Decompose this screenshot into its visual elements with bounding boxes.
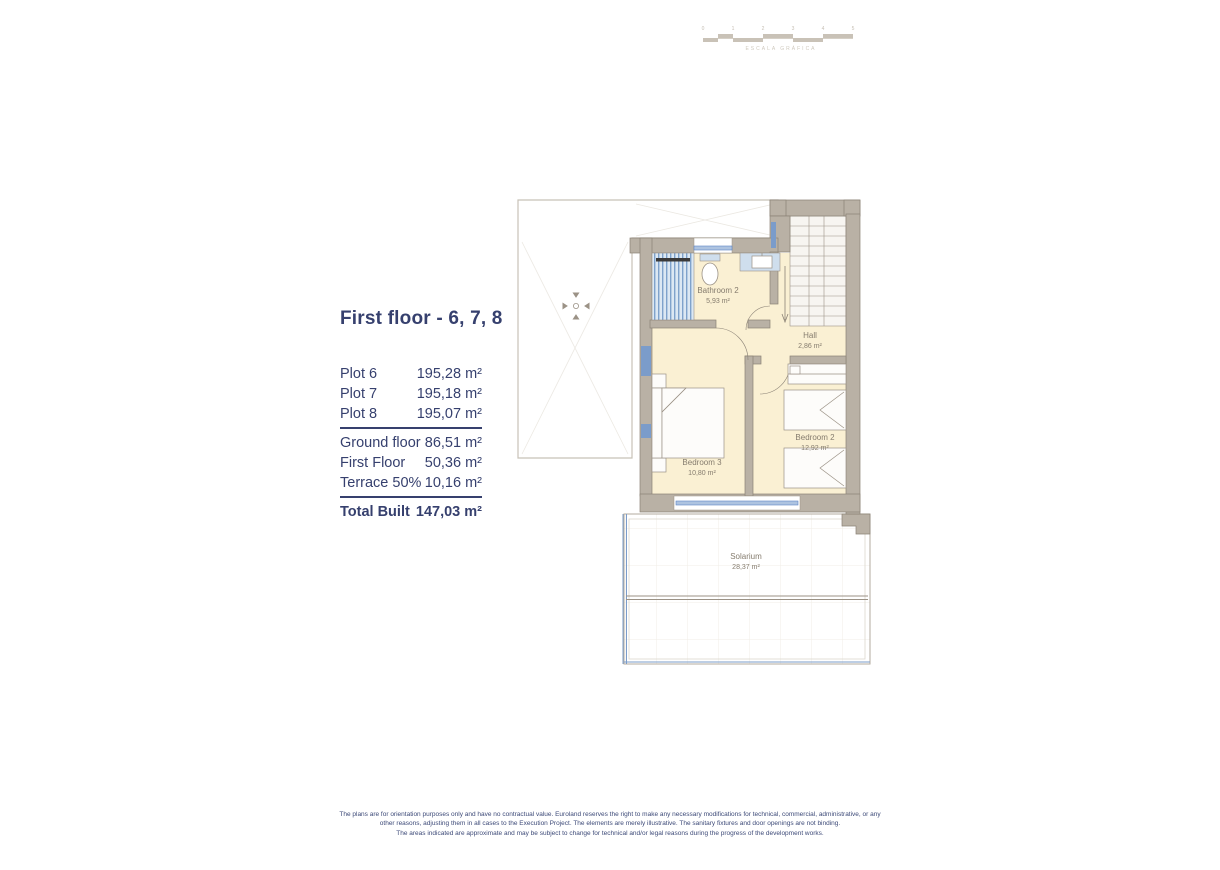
table-row: Plot 6 195,28 m²: [340, 364, 482, 384]
sink: [752, 256, 772, 268]
row-label: Terrace 50%: [340, 473, 421, 493]
room-label-solarium: Solarium 28,37 m²: [730, 551, 762, 573]
scale-caption: ESCALA GRÁFICA: [703, 46, 859, 52]
scale-ticks: 0 1 2 3 4 5: [703, 26, 859, 33]
row-label: Ground floor: [340, 433, 421, 453]
scale-tick-label: 1: [732, 26, 735, 32]
disclaimer-line: The plans are for orientation purposes o…: [0, 810, 1220, 819]
room-label-bathroom2: Bathroom 2 5,93 m²: [697, 285, 738, 307]
total-row: Total Built 147,03 m²: [340, 502, 482, 522]
toilet-bowl: [702, 263, 718, 285]
total-value: 147,03 m²: [416, 502, 482, 522]
room-area: 28,37 m²: [730, 563, 762, 573]
room-area: 2,86 m²: [798, 342, 822, 352]
row-value: 10,16 m²: [425, 473, 482, 493]
table-row: Terrace 50% 10,16 m²: [340, 473, 482, 493]
room-label-hall: Hall 2,86 m²: [798, 330, 822, 352]
row-label: Plot 7: [340, 384, 377, 404]
room-label-bedroom3: Bedroom 3 10,80 m²: [682, 457, 721, 479]
table-row: First Floor 50,36 m²: [340, 453, 482, 473]
table-row: Ground floor 86,51 m²: [340, 433, 482, 453]
toilet-tank: [700, 254, 720, 261]
row-value: 86,51 m²: [425, 433, 482, 453]
scale-tick-label: 2: [762, 26, 765, 32]
scale-tick-label: 0: [702, 26, 705, 32]
room-name: Solarium: [730, 551, 762, 563]
row-value: 50,36 m²: [425, 453, 482, 473]
bedroom2-furniture: [784, 364, 846, 488]
total-label: Total Built: [340, 502, 410, 522]
room-label-bedroom2: Bedroom 2 12,92 m²: [795, 432, 834, 454]
page-title: First floor - 6, 7, 8: [340, 308, 482, 330]
staircase: [782, 216, 846, 326]
row-value: 195,18 m²: [417, 384, 482, 404]
room-area: 12,92 m²: [795, 444, 834, 454]
disclaimer-line: The areas indicated are approximate and …: [0, 829, 1220, 838]
table-row: Plot 8 195,07 m²: [340, 404, 482, 424]
solarium-area: [623, 514, 870, 664]
disclaimer: The plans are for orientation purposes o…: [0, 810, 1220, 838]
floor-plan: Bathroom 2 5,93 m² Hall 2,86 m² Bedroom …: [502, 196, 882, 676]
shower: [652, 253, 694, 320]
divider-line: [340, 496, 482, 498]
room-area: 10,80 m²: [682, 469, 721, 479]
area-table: Plot 6 195,28 m² Plot 7 195,18 m² Plot 8…: [340, 364, 482, 522]
disclaimer-line: other reasons, adjusting them in all cas…: [0, 819, 1220, 828]
scale-tick-label: 5: [852, 26, 855, 32]
room-name: Bedroom 3: [682, 457, 721, 469]
shower-bar: [656, 258, 690, 262]
row-label: First Floor: [340, 453, 405, 473]
room-name: Hall: [798, 330, 822, 342]
table-row: Plot 7 195,18 m²: [340, 384, 482, 404]
scale-segments: [703, 34, 859, 43]
row-label: Plot 8: [340, 404, 377, 424]
row-value: 195,07 m²: [417, 404, 482, 424]
scale-tick-label: 4: [822, 26, 825, 32]
room-name: Bathroom 2: [697, 285, 738, 297]
scale-tick-label: 3: [792, 26, 795, 32]
info-panel: First floor - 6, 7, 8 Plot 6 195,28 m² P…: [340, 308, 482, 522]
floor-plan-page: 0 1 2 3 4 5 ESCALA GRÁFICA First floor -…: [0, 0, 1220, 870]
room-area: 5,93 m²: [697, 297, 738, 307]
graphic-scale-bar: 0 1 2 3 4 5 ESCALA GRÁFICA: [703, 26, 859, 56]
room-name: Bedroom 2: [795, 432, 834, 444]
divider-line: [340, 427, 482, 429]
row-value: 195,28 m²: [417, 364, 482, 384]
row-label: Plot 6: [340, 364, 377, 384]
